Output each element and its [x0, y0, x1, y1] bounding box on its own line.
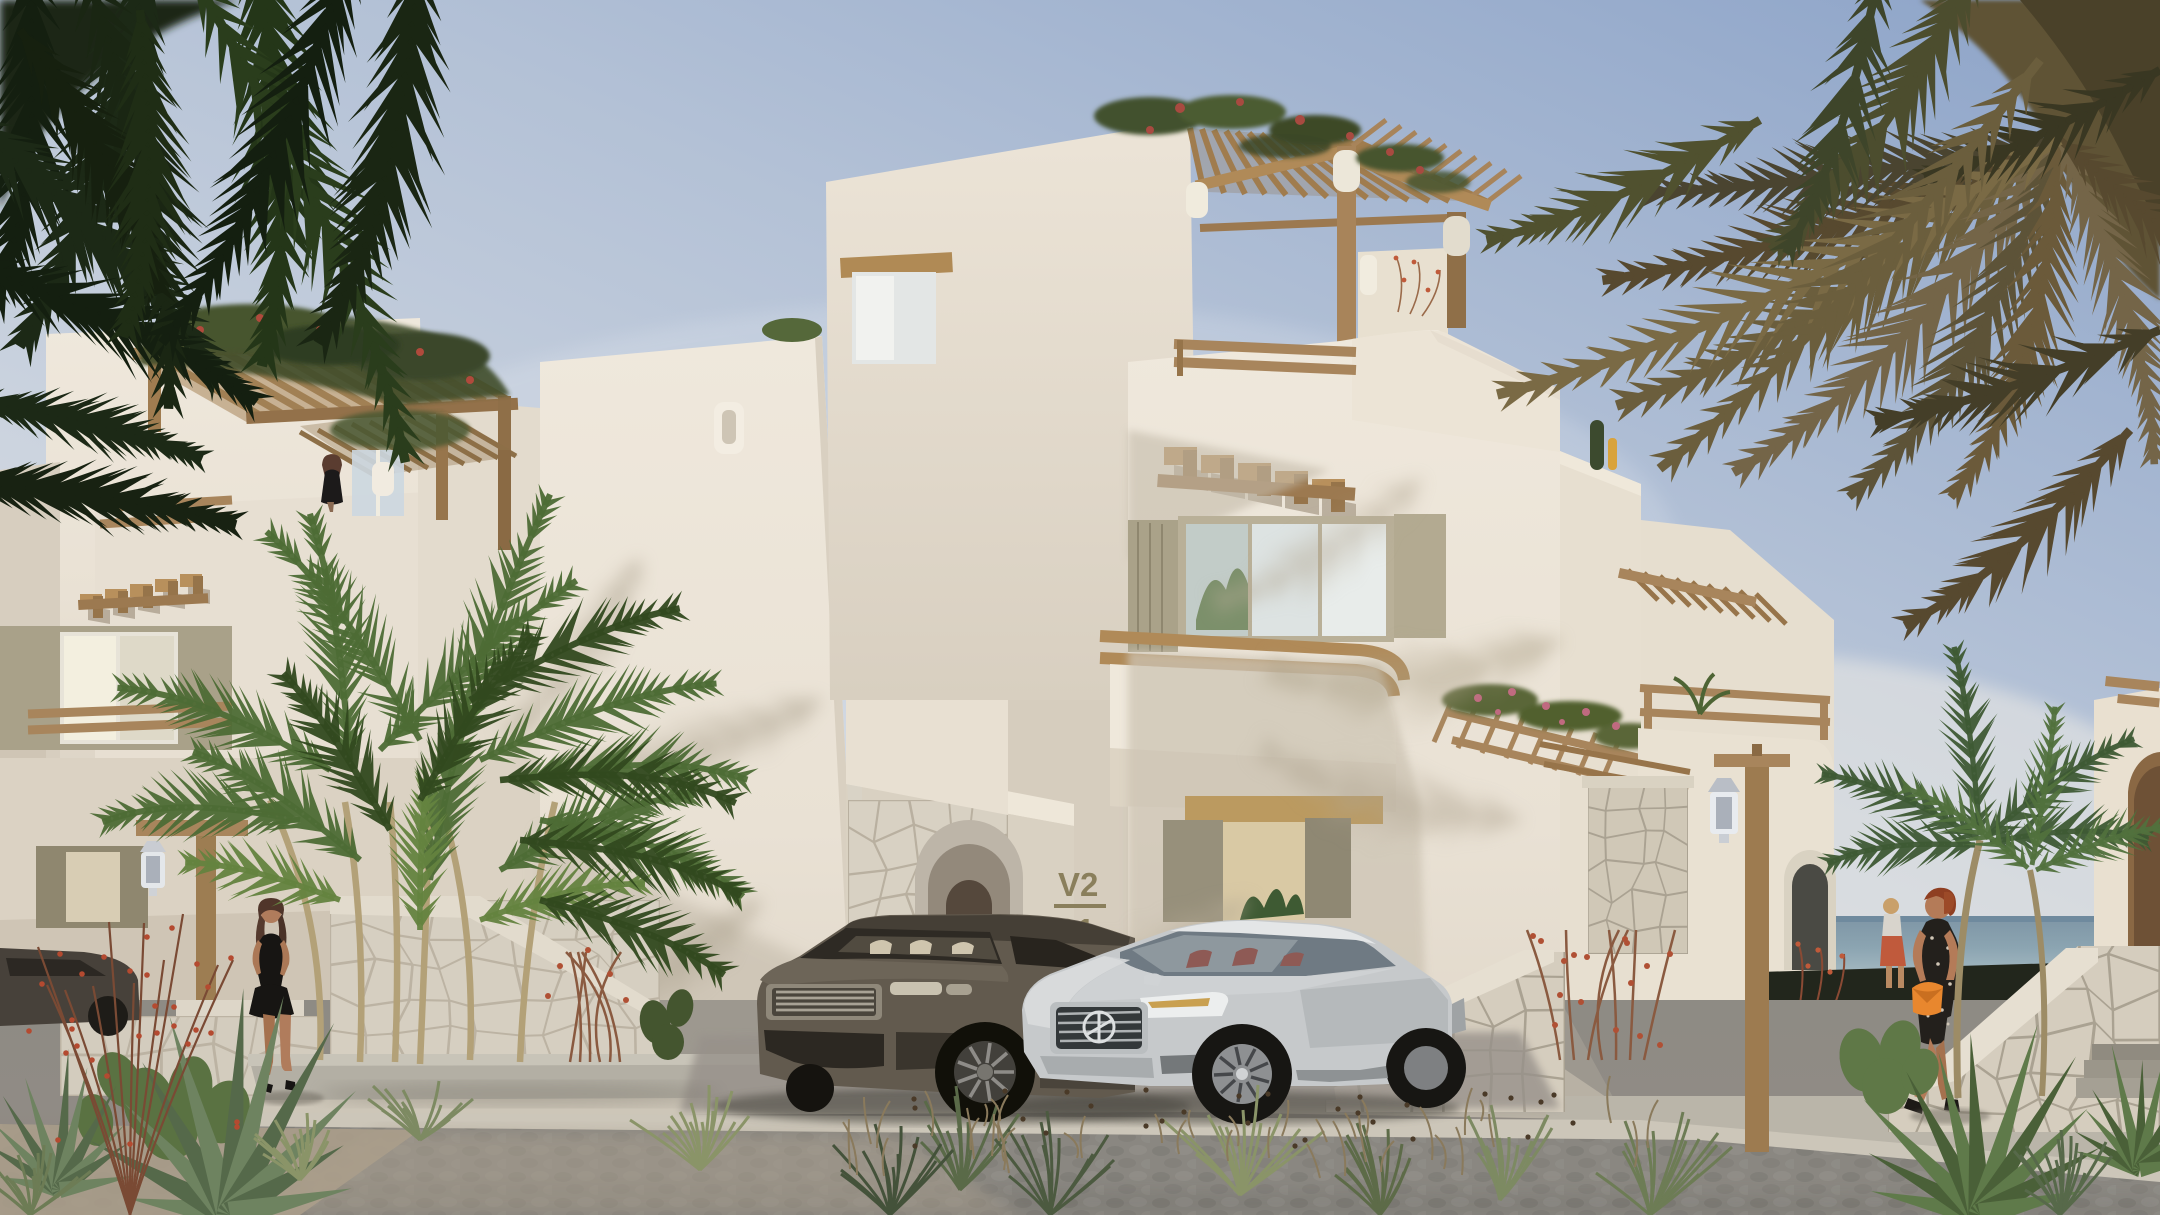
svg-text:V2: V2: [1058, 866, 1098, 903]
